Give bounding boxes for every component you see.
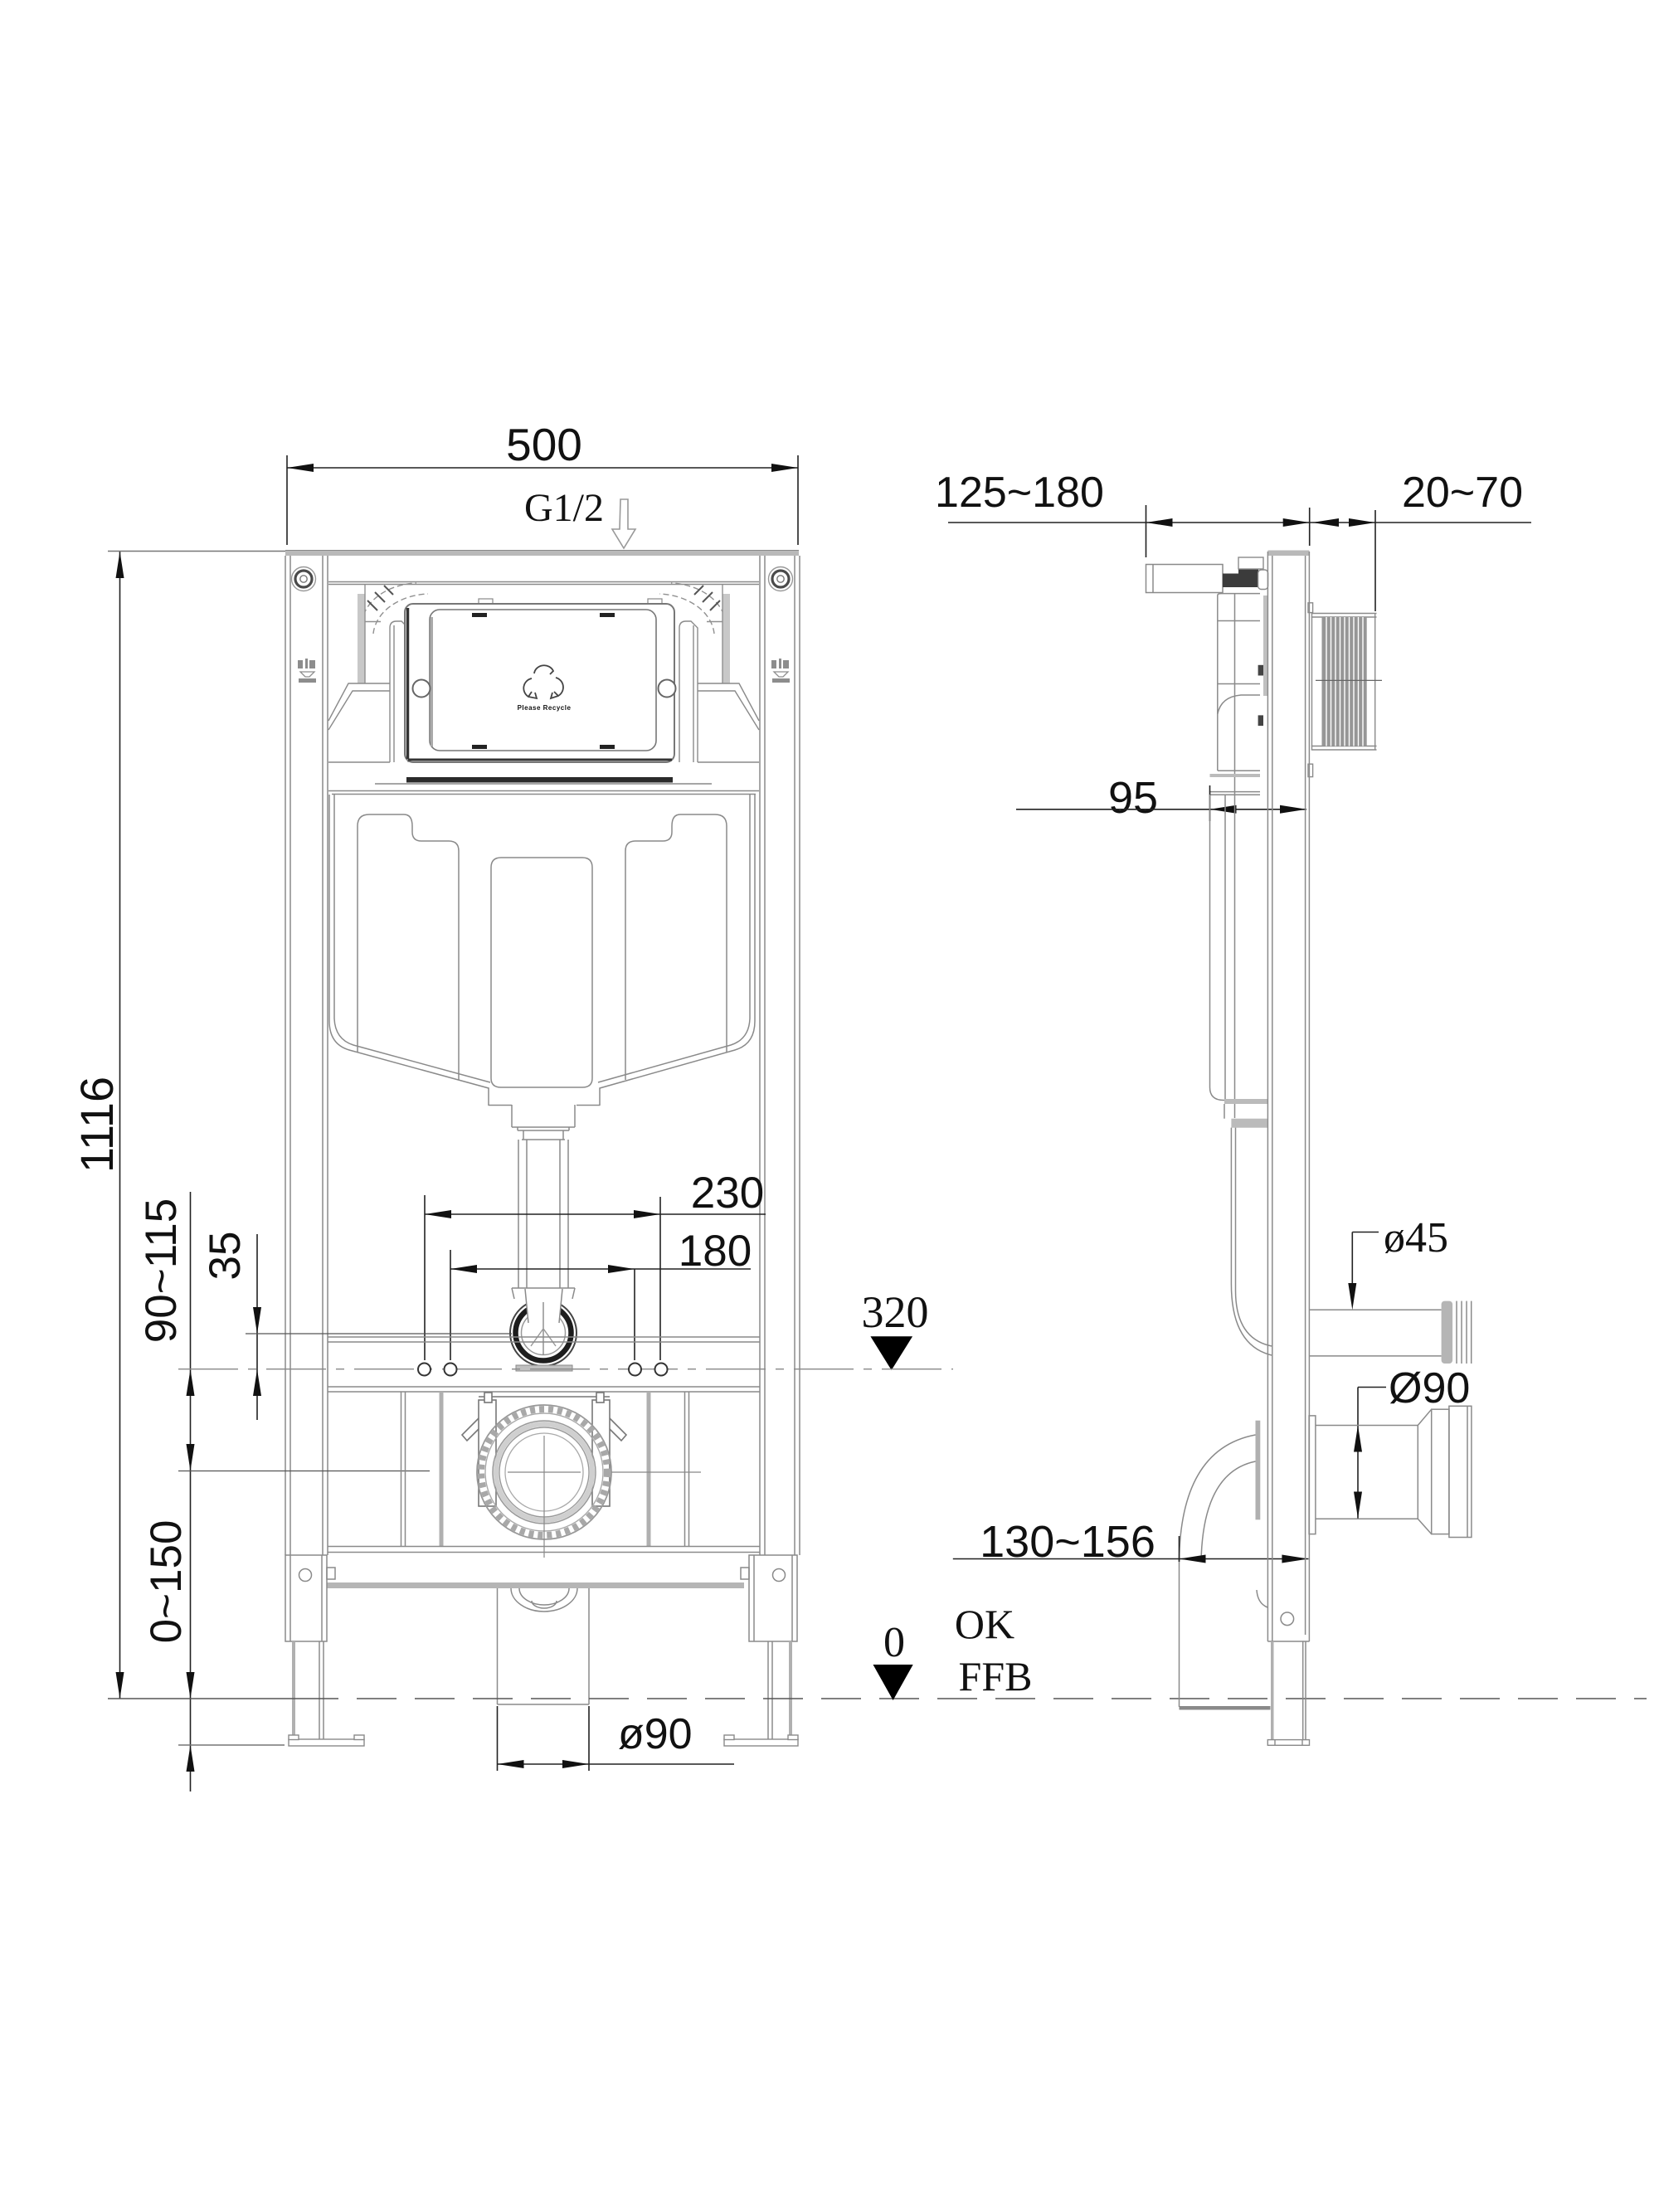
svg-text:OK: OK <box>955 1601 1014 1647</box>
svg-text:FFB: FFB <box>959 1653 1033 1699</box>
svg-text:ø45: ø45 <box>1384 1214 1448 1262</box>
svg-text:180: 180 <box>679 1227 752 1276</box>
svg-text:125~180: 125~180 <box>935 469 1104 517</box>
svg-text:500: 500 <box>506 419 582 470</box>
svg-text:G1/2: G1/2 <box>524 486 604 530</box>
svg-text:90~115: 90~115 <box>137 1198 186 1343</box>
svg-text:Please Recycle: Please Recycle <box>518 704 572 712</box>
svg-text:20~70: 20~70 <box>1402 469 1523 517</box>
svg-text:0: 0 <box>883 1619 905 1666</box>
svg-text:35: 35 <box>201 1232 250 1281</box>
svg-text:95: 95 <box>1108 773 1158 823</box>
svg-text:ø90: ø90 <box>618 1710 693 1758</box>
svg-text:1116: 1116 <box>71 1077 123 1173</box>
svg-text:230: 230 <box>691 1169 764 1218</box>
svg-text:Ø90: Ø90 <box>1389 1364 1470 1412</box>
svg-text:0~150: 0~150 <box>142 1520 191 1644</box>
svg-text:320: 320 <box>862 1287 929 1337</box>
